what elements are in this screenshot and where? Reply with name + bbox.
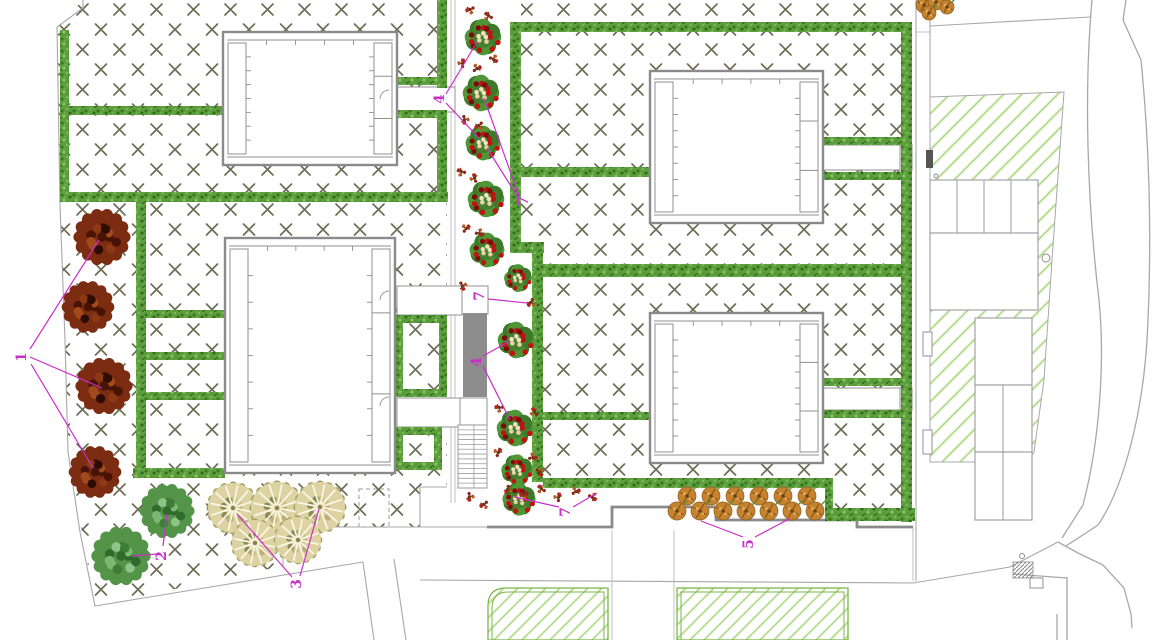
building bbox=[650, 71, 823, 223]
planter-groundcover bbox=[403, 323, 439, 389]
tan-flower bbox=[678, 485, 698, 505]
hedge bbox=[518, 22, 912, 32]
hedge bbox=[136, 310, 224, 318]
tree-tan bbox=[231, 519, 280, 568]
hedge bbox=[397, 110, 439, 118]
hedge bbox=[136, 352, 224, 360]
paved-area bbox=[930, 233, 1038, 310]
hedge bbox=[520, 167, 650, 177]
small-sprig bbox=[454, 166, 466, 178]
site-boundary-line bbox=[363, 562, 374, 640]
crosswalk bbox=[1013, 562, 1033, 578]
small-sprig bbox=[469, 173, 478, 183]
flowering-shrub bbox=[497, 410, 534, 447]
paved-area bbox=[1030, 578, 1043, 588]
hedge bbox=[901, 22, 912, 522]
hedge bbox=[823, 137, 902, 145]
plan-number-label: 7 bbox=[517, 196, 531, 206]
utility-circle bbox=[934, 174, 938, 178]
plan-number-label: 1 bbox=[15, 352, 29, 362]
tan-flower bbox=[702, 485, 722, 505]
hedge bbox=[543, 478, 825, 488]
lawn-area bbox=[488, 588, 608, 640]
utility-circle bbox=[1020, 554, 1025, 559]
building bbox=[650, 313, 823, 463]
lawn-area bbox=[677, 588, 848, 640]
plan-number-label: 5 bbox=[742, 539, 756, 549]
road-edge bbox=[1062, 0, 1101, 538]
plan-number-label: 4 bbox=[433, 94, 447, 104]
flowering-shrub bbox=[501, 454, 532, 485]
hedge bbox=[823, 410, 902, 418]
plan-number-label: 7 bbox=[559, 507, 573, 517]
hedge bbox=[397, 77, 439, 85]
hedge bbox=[136, 392, 224, 400]
site-boundary-line bbox=[420, 580, 913, 583]
small-sprig bbox=[465, 492, 476, 503]
site-boundary-line bbox=[420, 487, 447, 527]
small-sprig bbox=[460, 222, 472, 233]
paved-area bbox=[460, 398, 487, 425]
hedge bbox=[532, 253, 543, 482]
hedge bbox=[543, 412, 650, 420]
hedge bbox=[823, 172, 902, 180]
leader-line bbox=[755, 519, 789, 537]
stairs bbox=[458, 425, 487, 488]
plan-number-label: 3 bbox=[290, 579, 304, 589]
small-sprig bbox=[465, 6, 474, 14]
hedge bbox=[823, 378, 902, 386]
paved-area bbox=[397, 286, 462, 315]
hedge bbox=[136, 202, 146, 470]
small-sprig bbox=[472, 63, 483, 72]
small-sprig bbox=[552, 491, 563, 503]
plan-number-label: 4 bbox=[470, 357, 484, 367]
paved-area bbox=[975, 318, 1032, 385]
flowering-shrub bbox=[498, 322, 535, 359]
plan-number-label: 7 bbox=[473, 291, 487, 301]
plan-number-label: 2 bbox=[155, 551, 169, 561]
hedge bbox=[510, 22, 521, 253]
site-boundary-line bbox=[930, 17, 1090, 26]
hedge bbox=[437, 0, 447, 88]
tan-flower bbox=[940, 0, 955, 14]
paved-area bbox=[923, 430, 932, 454]
tan-flower bbox=[668, 500, 688, 520]
paved-area bbox=[823, 145, 910, 170]
site-plan-stage: 123445777 bbox=[0, 0, 1152, 640]
flowering-shrub bbox=[465, 19, 502, 56]
leader-line bbox=[701, 521, 743, 537]
small-sprig bbox=[587, 491, 599, 503]
small-sprig bbox=[488, 53, 500, 65]
flowering-shrub bbox=[504, 264, 532, 292]
site-boundary-line bbox=[394, 559, 406, 640]
planter-groundcover bbox=[403, 435, 434, 462]
road-edge bbox=[1066, 0, 1150, 546]
utility-circle bbox=[1042, 254, 1050, 262]
ramp bbox=[463, 313, 487, 397]
tan-flower bbox=[726, 485, 746, 505]
leader-line bbox=[488, 299, 527, 303]
small-sprig bbox=[478, 500, 489, 510]
road-edge bbox=[1058, 542, 1132, 628]
flowering-shrub bbox=[463, 75, 500, 112]
building bbox=[223, 32, 397, 165]
paved-area bbox=[923, 332, 932, 356]
site-plan-canvas bbox=[0, 0, 1152, 640]
tan-flower bbox=[691, 500, 711, 520]
flowering-shrub bbox=[470, 233, 505, 268]
hedge bbox=[60, 106, 223, 115]
gate-tick bbox=[926, 150, 933, 168]
lawn-layer bbox=[488, 588, 848, 640]
small-sprig bbox=[492, 445, 504, 457]
hedge bbox=[543, 264, 912, 277]
hedge bbox=[825, 508, 915, 521]
hedge bbox=[510, 242, 544, 253]
paved-area bbox=[397, 398, 462, 427]
hedge bbox=[133, 468, 225, 478]
flowering-shrub bbox=[468, 181, 505, 218]
hedge bbox=[60, 192, 448, 202]
site-boundary-line bbox=[913, 542, 1058, 583]
building bbox=[225, 238, 395, 473]
hedge bbox=[437, 110, 447, 193]
paved-area bbox=[823, 388, 910, 410]
